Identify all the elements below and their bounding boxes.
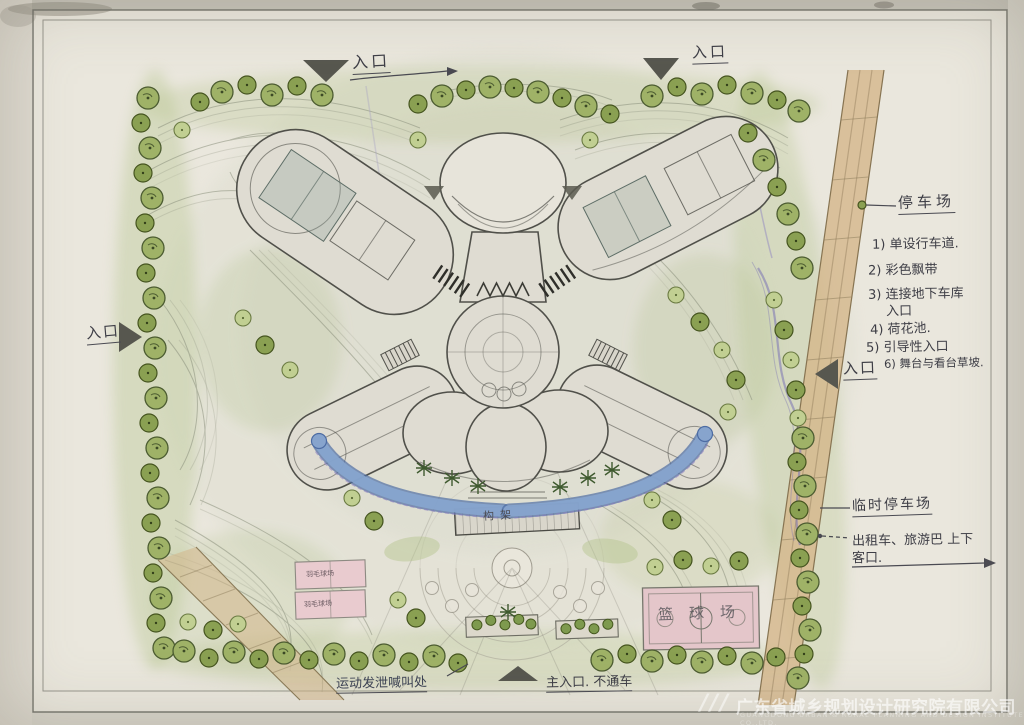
taxi-label-line1: 出租车、旅游巴 上下 [852, 528, 973, 549]
pergola-label: 构架 [483, 506, 518, 524]
entrance-label-top-left: 入口 [351, 47, 390, 75]
entrance-label-left: 入口 [85, 320, 121, 346]
shout-area-label: 运动发泄喊叫处 [336, 671, 427, 694]
entrance-label-right: 入口 [843, 356, 878, 380]
note-item-3: 3) 连接地下车库 [868, 282, 964, 303]
note-item-3b: 入口 [886, 300, 912, 319]
basketball-court-label: 篮球场 [658, 600, 752, 624]
note-item-6: 6) 舞台与看台草坡. [884, 354, 984, 372]
taxi-label-line2: 客口. [852, 547, 882, 566]
main-entrance-label: 主入口. 不通车 [546, 670, 633, 693]
badminton-court-label-2: 羽毛球场 [304, 598, 332, 609]
watermark-logo: /// [700, 691, 730, 716]
badminton-court-label-1: 羽毛球场 [306, 569, 334, 580]
parking-label: 停车场 [898, 190, 956, 215]
watermark-company-en: GUANGDONG URBAN & RURAL PLANNING AND DES… [740, 711, 1024, 725]
note-item-5: 5) 引导性入口 [866, 335, 949, 355]
note-item-2: 2) 彩色飘带 [868, 258, 938, 278]
entrance-label-top-right: 入口 [692, 40, 729, 64]
temp-parking-label: 临时停车场 [852, 493, 933, 518]
note-item-1: 1) 单设行车道. [872, 232, 959, 253]
scanned-site-plan: 入口 入口 入口 入口 停车场 1) 单设行车道. 2) 彩色飘带 3) 连接地… [0, 0, 1024, 725]
